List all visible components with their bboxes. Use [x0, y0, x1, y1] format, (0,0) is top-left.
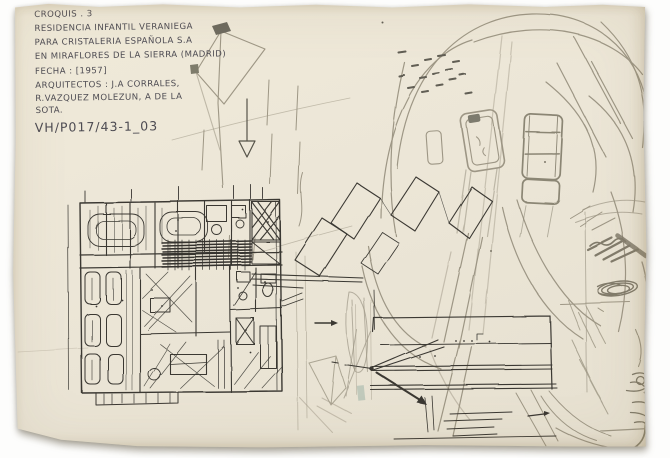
dense-hatch-zone [162, 240, 252, 270]
nose-lips-scribble [626, 372, 648, 424]
project-title-line1: RESIDENCIA INFANTIL VERANIEGA [34, 22, 193, 34]
tilted-volumes-sketch [252, 177, 492, 330]
scan-background: CROQUIS . 3 RESIDENCIA INFANTIL VERANIEG… [0, 0, 670, 458]
bathroom-fixtures [234, 272, 276, 306]
arrow-down-sketch [239, 99, 255, 157]
architects-line2: R.VAZQUEZ MOLEZUN, A DE LA [35, 92, 182, 104]
aerial-perspective-sketch [362, 14, 646, 436]
face-profile-sketch [556, 200, 664, 450]
section-dots [419, 340, 491, 358]
croquis-number: CROQUIS . 3 [34, 9, 93, 20]
dash-cluster-marks [398, 51, 472, 94]
architects-line3: SOTA. [36, 106, 64, 116]
reference-code: VH/P017/43-1_03 [35, 118, 158, 135]
small-opening-sketch [426, 130, 443, 164]
wardrobe-shapes [234, 318, 282, 388]
bed-shapes [85, 270, 132, 390]
paper-sheet: CROQUIS . 3 RESIDENCIA INFANTIL VERANIEG… [10, 3, 647, 451]
sketch-canvas: CROQUIS . 3 RESIDENCIA INFANTIL VERANIEG… [0, 0, 670, 458]
ink-layer [68, 99, 557, 439]
project-date: FECHA : [1957] [35, 66, 107, 77]
ladder-window-sketch [519, 114, 563, 239]
project-location: EN MIRAFLORES DE LA SIERRA (MADRID) [35, 49, 226, 62]
eye-scribble [597, 279, 639, 298]
paper-surface: CROQUIS . 3 RESIDENCIA INFANTIL VERANIEG… [10, 3, 647, 451]
window-panel-sketch [460, 109, 506, 172]
eyebrow-scribble [588, 236, 646, 262]
architects-line1: ARQUITECTOS : J.A CORRALES, [35, 79, 180, 91]
arrow-right-sketch [315, 320, 338, 326]
profile-outline [614, 264, 664, 451]
floor-plan-sketch [68, 185, 282, 405]
teal-smudge-mark [357, 386, 366, 402]
project-title-line2: PARA CRISTALERIA ESPAÑOLA S.A [35, 35, 193, 48]
